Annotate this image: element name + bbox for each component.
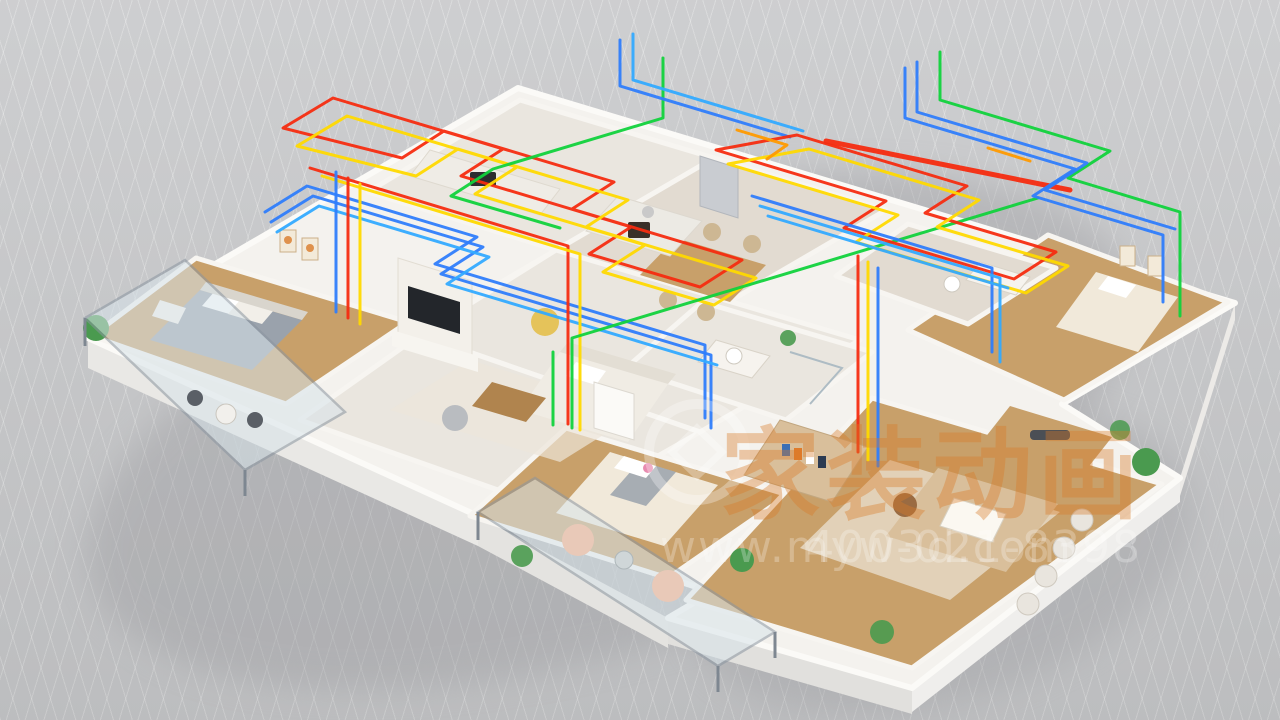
watermark-brand: 家装动画 bbox=[720, 417, 1144, 534]
glass-side-table bbox=[615, 551, 633, 569]
watermark: 家装动画 www.myw3d.com 400-021-8398 bbox=[649, 404, 1144, 573]
beanbag-1 bbox=[562, 524, 594, 556]
balcony-table bbox=[216, 404, 236, 424]
vessel-sink bbox=[726, 348, 742, 364]
armchair-gray bbox=[442, 405, 468, 431]
island-sink bbox=[642, 206, 654, 218]
toilet bbox=[944, 276, 960, 292]
watermark-phone: 400-021-8398 bbox=[806, 522, 1142, 573]
render-canvas: 家装动画 www.myw3d.com 400-021-8398 bbox=[0, 0, 1280, 720]
apartment-render: 家装动画 www.myw3d.com 400-021-8398 bbox=[0, 0, 1280, 720]
beanbag-2 bbox=[652, 570, 684, 602]
